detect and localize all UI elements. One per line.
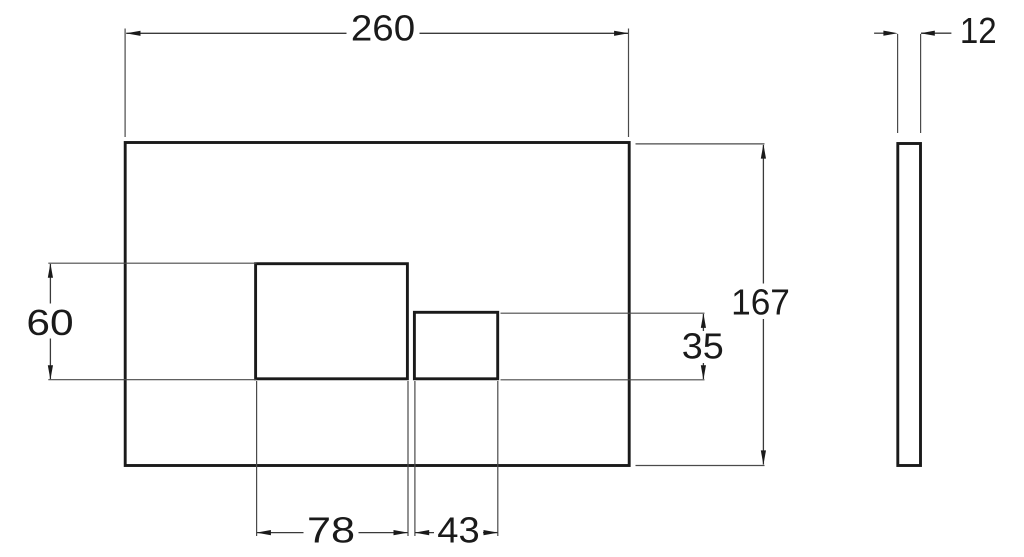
svg-text:78: 78 — [307, 511, 355, 551]
svg-text:167: 167 — [731, 282, 790, 322]
svg-text:60: 60 — [26, 303, 73, 343]
svg-text:43: 43 — [437, 510, 479, 551]
svg-text:260: 260 — [351, 8, 415, 49]
svg-text:35: 35 — [682, 326, 724, 366]
svg-text:12: 12 — [960, 12, 997, 52]
